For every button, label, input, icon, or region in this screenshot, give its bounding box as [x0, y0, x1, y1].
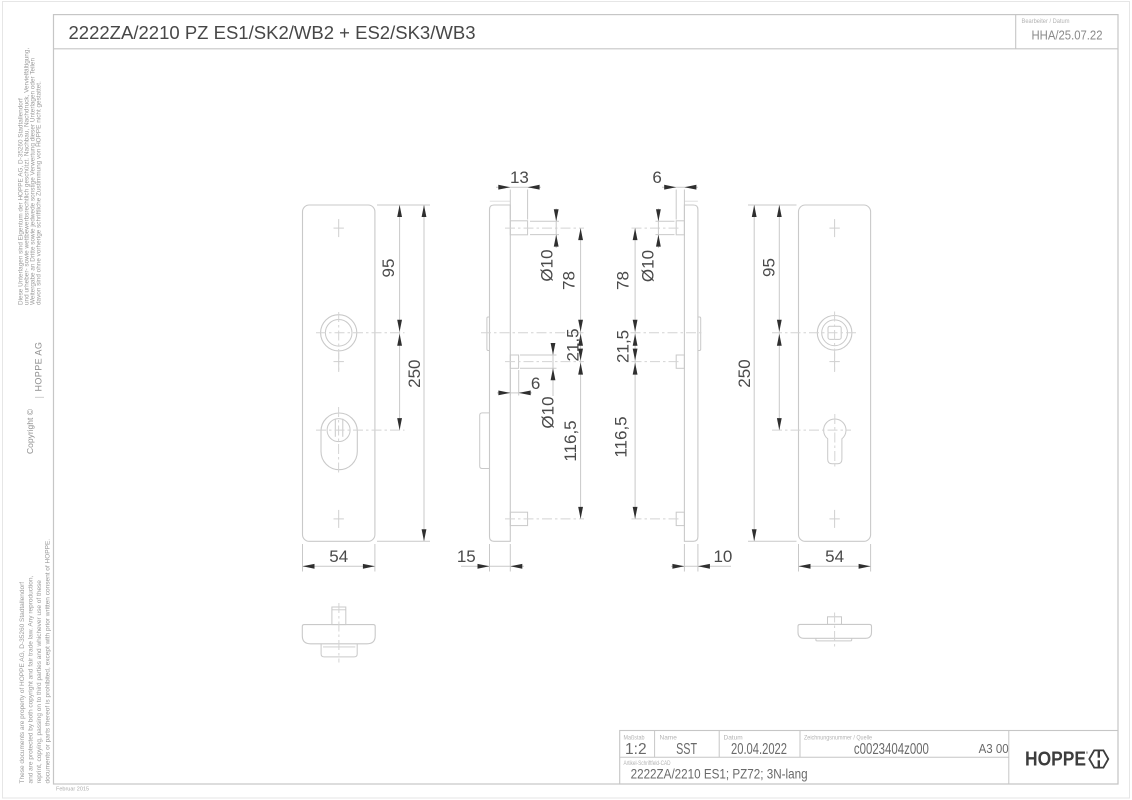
svg-text:Ø10: Ø10 [538, 249, 557, 281]
svg-text:78: 78 [560, 271, 579, 290]
svg-text:2222ZA/2210 ES1; PZ72; 3N-lan: 2222ZA/2210 ES1; PZ72; 3N-lang [631, 765, 808, 781]
svg-text:HOPPE: HOPPE [1025, 749, 1086, 771]
svg-text:78: 78 [614, 271, 633, 290]
svg-text:HHA/25.07.22: HHA/25.07.22 [1032, 29, 1103, 43]
svg-text:250: 250 [405, 360, 424, 388]
svg-text:davon sind ohne vorherige schr: davon sind ohne vorherige schriftliche Z… [36, 81, 43, 305]
svg-text:20.04.2022: 20.04.2022 [731, 741, 787, 758]
svg-text:reprint, copying, passing on t: reprint, copying, passing on to third pa… [36, 580, 43, 784]
svg-text:10: 10 [713, 547, 732, 566]
svg-text:Name: Name [660, 734, 678, 741]
svg-text:15: 15 [457, 547, 476, 566]
svg-text:documents or parts thereof is: documents or parts thereof is prohibited… [45, 539, 52, 784]
svg-text:Ø10: Ø10 [639, 250, 658, 282]
svg-text:6: 6 [652, 168, 661, 187]
svg-text:Ø10: Ø10 [539, 396, 558, 428]
svg-text:1:2: 1:2 [625, 741, 647, 758]
svg-text:95: 95 [379, 259, 398, 278]
svg-text:116,5: 116,5 [612, 416, 631, 457]
svg-text:6: 6 [531, 374, 540, 393]
svg-text:and are protected by both copy: and are protected by both copyright and … [28, 576, 35, 784]
svg-text:54: 54 [329, 547, 348, 566]
svg-text:These documents are property o: These documents are property of HOPPE AG… [19, 582, 26, 784]
svg-text:HOPPE AG: HOPPE AG [34, 342, 44, 392]
svg-text:Bearbeiter / Datum: Bearbeiter / Datum [1022, 18, 1070, 25]
svg-text:Februar 2015: Februar 2015 [56, 787, 89, 793]
svg-text:54: 54 [825, 547, 844, 566]
svg-text:A3 00: A3 00 [979, 741, 1009, 756]
svg-text:21,5: 21,5 [614, 330, 633, 363]
svg-text:13: 13 [510, 168, 529, 187]
svg-text:95: 95 [760, 258, 779, 277]
svg-text:Copyright ©: Copyright © [25, 408, 35, 454]
svg-text:SST: SST [676, 741, 697, 758]
svg-text:250: 250 [735, 359, 754, 387]
svg-text:2222ZA/2210 PZ ES1/SK2/WB2 + E: 2222ZA/2210 PZ ES1/SK2/WB2 + ES2/SK3/WB3 [69, 23, 476, 43]
svg-text:c0023404z000: c0023404z000 [854, 741, 929, 758]
svg-text:21,5: 21,5 [564, 328, 583, 361]
svg-text:116,5: 116,5 [561, 420, 580, 461]
